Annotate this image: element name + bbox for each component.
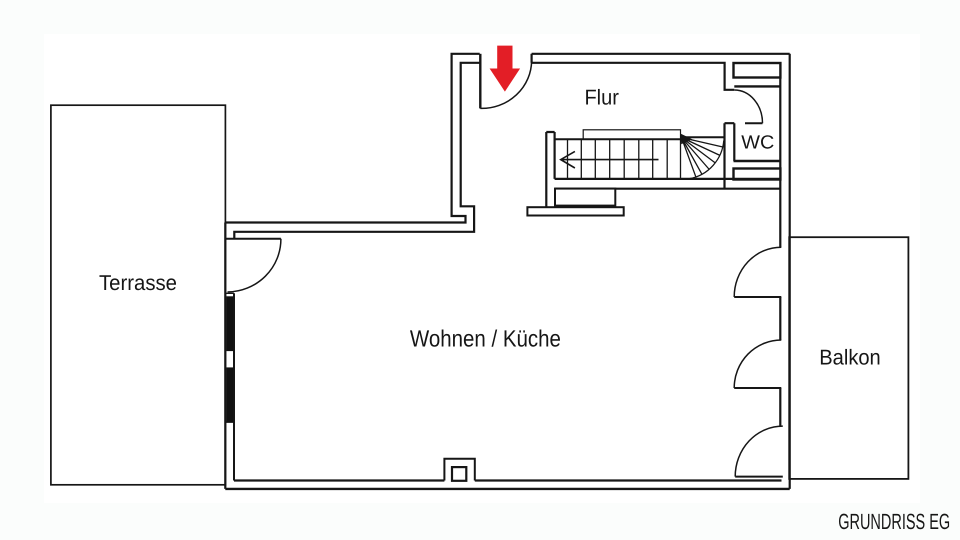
svg-text:Wohnen / Küche: Wohnen / Küche (410, 326, 561, 352)
svg-text:WC: WC (741, 133, 774, 154)
svg-text:Terrasse: Terrasse (99, 271, 177, 295)
svg-text:Balkon: Balkon (819, 346, 881, 370)
svg-text:Flur: Flur (584, 85, 619, 109)
svg-text:GRUNDRISS EG: GRUNDRISS EG (838, 509, 950, 534)
